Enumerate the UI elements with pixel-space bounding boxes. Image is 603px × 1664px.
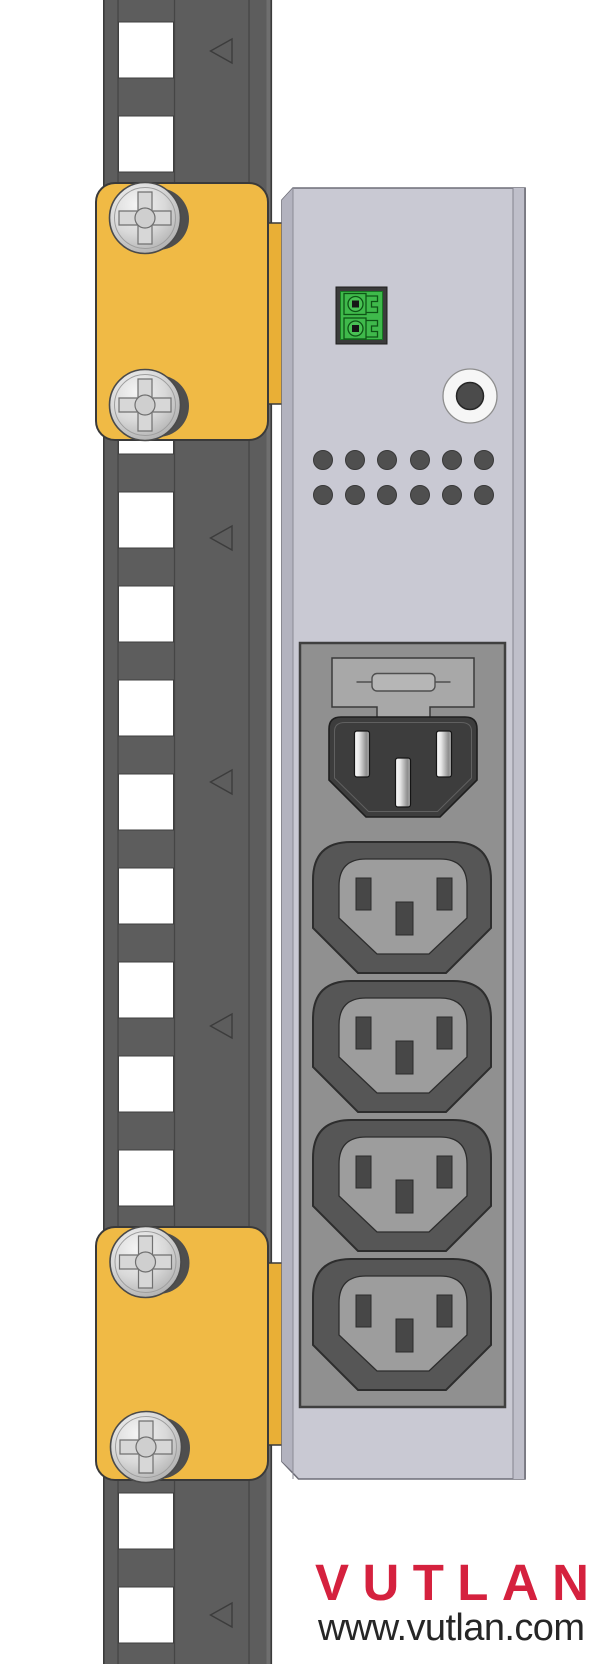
vent-hole <box>443 486 462 505</box>
pdu-illustration: VUTLAN www.vutlan.com <box>0 0 603 1664</box>
vent-hole <box>378 451 397 470</box>
rail-hole <box>119 1587 174 1643</box>
vent-hole <box>314 451 333 470</box>
rail-hole <box>119 868 174 924</box>
vent-hole <box>411 486 430 505</box>
mounting-bracket-top <box>96 183 268 441</box>
jack-port <box>443 369 497 423</box>
jack-hole <box>457 383 484 410</box>
outlet-c13-1 <box>313 842 491 973</box>
rail-hole <box>119 962 174 1018</box>
vent-hole <box>346 451 365 470</box>
inlet-pin <box>355 731 370 777</box>
outlet-c13-2 <box>313 981 491 1112</box>
outlet-c13-3 <box>313 1120 491 1251</box>
vent-hole <box>475 486 494 505</box>
rail-hole <box>119 680 174 736</box>
rail-hole <box>119 1493 174 1549</box>
outlet-c13-4 <box>313 1259 491 1390</box>
rail-hole <box>119 492 174 548</box>
vent-hole <box>314 486 333 505</box>
rail-hole <box>119 1056 174 1112</box>
power-inlet-c14 <box>329 717 477 817</box>
mounting-bracket-bottom <box>96 1227 268 1483</box>
vent-hole <box>475 451 494 470</box>
website-url: www.vutlan.com <box>317 1607 587 1649</box>
vent-hole <box>378 486 397 505</box>
pdu-left-bevel <box>282 188 293 1472</box>
rail-hole <box>119 774 174 830</box>
rail-hole <box>119 586 174 642</box>
vent-hole <box>346 486 365 505</box>
vent-hole <box>443 451 462 470</box>
rail-hole <box>119 1150 174 1206</box>
fuse-cartridge <box>372 674 435 692</box>
vutlan-logo: VUTLAN <box>315 1554 591 1611</box>
rail-hole <box>119 116 174 172</box>
inlet-pin-earth <box>396 758 411 807</box>
pdu-right-bevel <box>513 188 525 1479</box>
terminal-block <box>336 287 387 344</box>
rail-hole <box>119 22 174 78</box>
inlet-pin <box>437 731 452 777</box>
vent-hole <box>411 451 430 470</box>
